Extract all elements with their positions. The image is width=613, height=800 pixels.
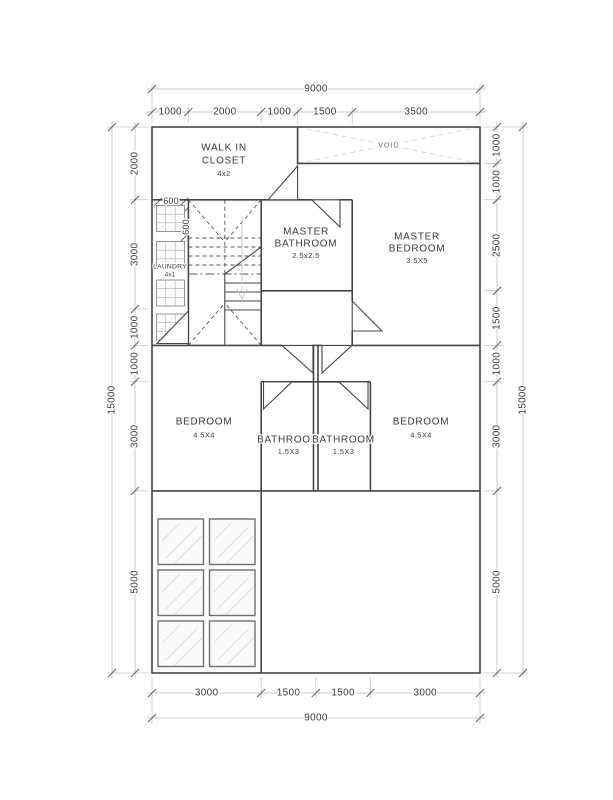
dim-right-segment: 5000 — [492, 570, 503, 594]
door-swing-master-bedroom — [352, 301, 382, 331]
dim-top-segment: 1500 — [313, 107, 337, 118]
room-size-bedroom-right: 4.5X4 — [410, 431, 432, 440]
room-label-walk-in-closet-line2: CLOSET — [202, 156, 246, 167]
stair-flight-diagonal — [188, 303, 224, 345]
room-size-bathroom-left: 1.5X3 — [278, 447, 300, 456]
room-size-master-bathroom: 2.5x2.5 — [292, 251, 319, 260]
dim-top-segment: 2000 — [213, 107, 237, 118]
dim-left-segment: 3000 — [130, 243, 141, 267]
skylight-panels — [158, 519, 255, 667]
stair-cut-diagonal — [225, 247, 261, 274]
room-label-master-bathroom-line2: BATHROOM — [275, 239, 338, 250]
dim-left-segment: 2000 — [130, 152, 141, 176]
dim-left-segment: 1000 — [130, 352, 141, 376]
dim-bottom-segment: 3000 — [413, 688, 437, 699]
dim-stair-window-height: 600 — [181, 219, 191, 235]
staircase — [188, 200, 261, 346]
door-swing-bedroom-right — [322, 345, 352, 373]
room-label-bathroom-left: BATHROOM — [257, 435, 320, 446]
dim-right-total: 15000 — [518, 385, 529, 414]
room-label-bathroom-right: BATHROOM — [312, 435, 375, 446]
floor-plan-page: 9000 1000 2000 1000 1500 3500 3000 1500 … — [0, 0, 613, 800]
stair-flight-diagonal — [225, 303, 261, 345]
room-label-walk-in-closet-line1: WALK IN — [201, 143, 247, 154]
room-label-bedroom-left: BEDROOM — [176, 417, 233, 428]
room-size-bedroom-left: 4.5X4 — [193, 431, 215, 440]
room-size-bathroom-right: 1.5X3 — [333, 447, 355, 456]
room-label-bedroom-right: BEDROOM — [393, 417, 450, 428]
dim-top-segment: 1000 — [158, 107, 182, 118]
stair-flight-diagonal — [188, 200, 224, 242]
dim-left-segment: 5000 — [130, 570, 141, 594]
dim-left-segment: 1000 — [130, 315, 141, 339]
glass-panel — [210, 570, 256, 616]
dim-top-segment: 1000 — [268, 107, 292, 118]
door-swing-bathroom-right — [339, 382, 368, 409]
laundry-window-grid — [157, 280, 185, 306]
dim-bottom-segment: 1500 — [277, 688, 301, 699]
dim-left-segment: 3000 — [130, 424, 141, 448]
room-label-void: VOID — [378, 143, 400, 150]
glass-panel — [210, 621, 256, 667]
room-size-walk-in-closet: 4x2 — [217, 169, 230, 178]
glass-panel — [158, 621, 204, 667]
dim-bottom-segment: 1500 — [331, 688, 355, 699]
room-size-master-bedroom: 3.5X5 — [406, 256, 428, 265]
dim-top-total: 9000 — [304, 84, 328, 95]
dim-right-segment: 1000 — [492, 170, 503, 194]
dim-right-segment: 1000 — [492, 133, 503, 157]
glass-panel — [210, 519, 256, 565]
door-swing-bedroom-left — [282, 345, 313, 373]
dim-bottom-segment: 3000 — [195, 688, 219, 699]
dim-top-segment: 3500 — [404, 107, 428, 118]
door-swing-bathroom-left — [264, 382, 293, 409]
room-label-master-bedroom-line1: MASTER — [394, 232, 440, 243]
dim-left-total: 15000 — [107, 385, 118, 414]
stair-flight-diagonal — [225, 200, 261, 242]
dim-stair-window-width: 600 — [163, 196, 179, 206]
dim-right-segment: 1500 — [492, 306, 503, 330]
room-label-master-bedroom-line2: BEDROOM — [389, 244, 446, 255]
door-swing-master-bathroom — [312, 200, 340, 227]
room-labels: WALK IN CLOSET 4x2 VOID MASTER BATHROOM … — [153, 143, 449, 457]
dim-right-segment: 2500 — [492, 233, 503, 257]
room-label-laundry: LAUNDRY — [153, 264, 187, 271]
door-swing-walk-in-closet — [268, 166, 298, 200]
dim-right-segment: 3000 — [492, 424, 503, 448]
room-size-laundry: 4x1 — [165, 272, 176, 279]
dim-right-segment: 1000 — [492, 352, 503, 376]
glass-panel — [158, 519, 204, 565]
floor-plan-drawing: 9000 1000 2000 1000 1500 3500 3000 1500 … — [0, 0, 613, 800]
room-label-master-bathroom-line1: MASTER — [283, 227, 329, 238]
glass-panel — [158, 570, 204, 616]
dim-bottom-total: 9000 — [304, 713, 328, 724]
